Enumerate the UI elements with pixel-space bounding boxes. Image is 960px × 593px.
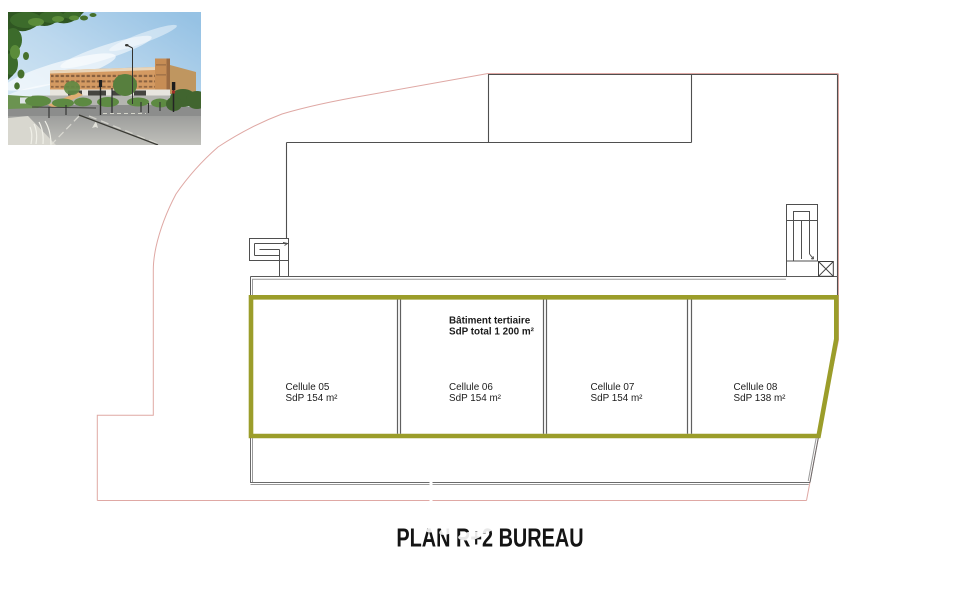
svg-text:SdP 154 m²: SdP 154 m² bbox=[591, 393, 644, 404]
svg-text:Cellule 06: Cellule 06 bbox=[449, 382, 493, 393]
svg-text:SdP 154 m²: SdP 154 m² bbox=[449, 393, 502, 404]
svg-text:Cellule 07: Cellule 07 bbox=[591, 382, 635, 393]
svg-text:Bâtiment tertiaire: Bâtiment tertiaire bbox=[449, 315, 531, 326]
svg-text:Cellule 08: Cellule 08 bbox=[734, 382, 778, 393]
svg-text:SdP total 1 200 m²: SdP total 1 200 m² bbox=[449, 327, 535, 338]
svg-text:SdP 138 m²: SdP 138 m² bbox=[734, 393, 787, 404]
svg-text:Cellule 05: Cellule 05 bbox=[286, 382, 330, 393]
svg-text:SdP 154 m²: SdP 154 m² bbox=[286, 393, 339, 404]
